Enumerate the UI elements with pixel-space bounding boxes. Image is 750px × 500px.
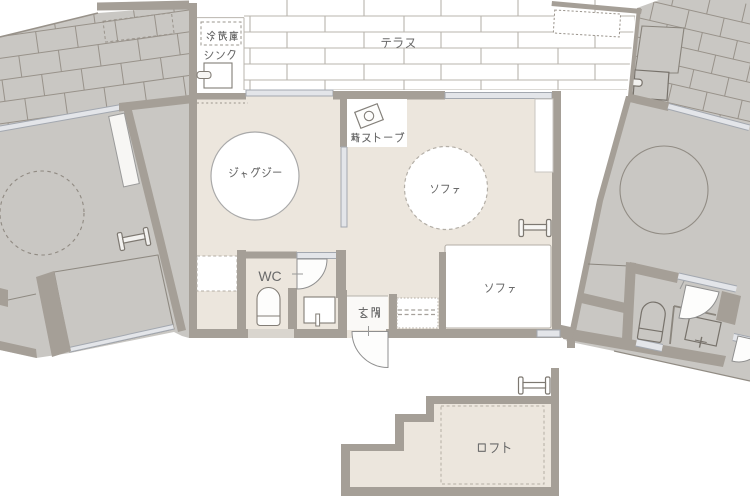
svg-text:WC: WC <box>258 268 281 284</box>
